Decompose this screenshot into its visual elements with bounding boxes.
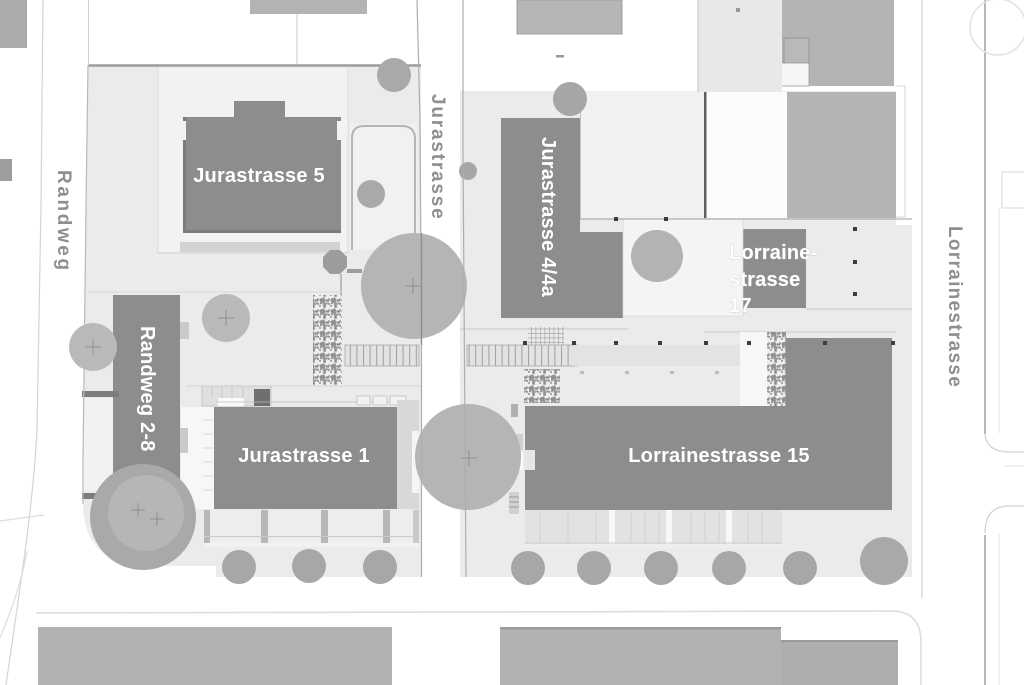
- svg-text:Jurastrasse 1: Jurastrasse 1: [238, 445, 370, 467]
- svg-text:Lorrainestrasse 15: Lorrainestrasse 15: [628, 445, 809, 467]
- svg-text:Lorrainestrasse: Lorrainestrasse: [944, 226, 965, 388]
- svg-text:strasse: strasse: [729, 269, 800, 291]
- svg-text:Jurastrasse: Jurastrasse: [427, 94, 448, 221]
- svg-text:Jurastrasse 5: Jurastrasse 5: [193, 165, 325, 187]
- svg-text:17: 17: [729, 295, 752, 317]
- svg-text:Jurastrasse 4/4a: Jurastrasse 4/4a: [537, 137, 559, 298]
- svg-text:Lorraine-: Lorraine-: [729, 242, 817, 264]
- svg-text:Randweg 2-8: Randweg 2-8: [136, 326, 158, 452]
- svg-text:Randweg: Randweg: [53, 170, 74, 273]
